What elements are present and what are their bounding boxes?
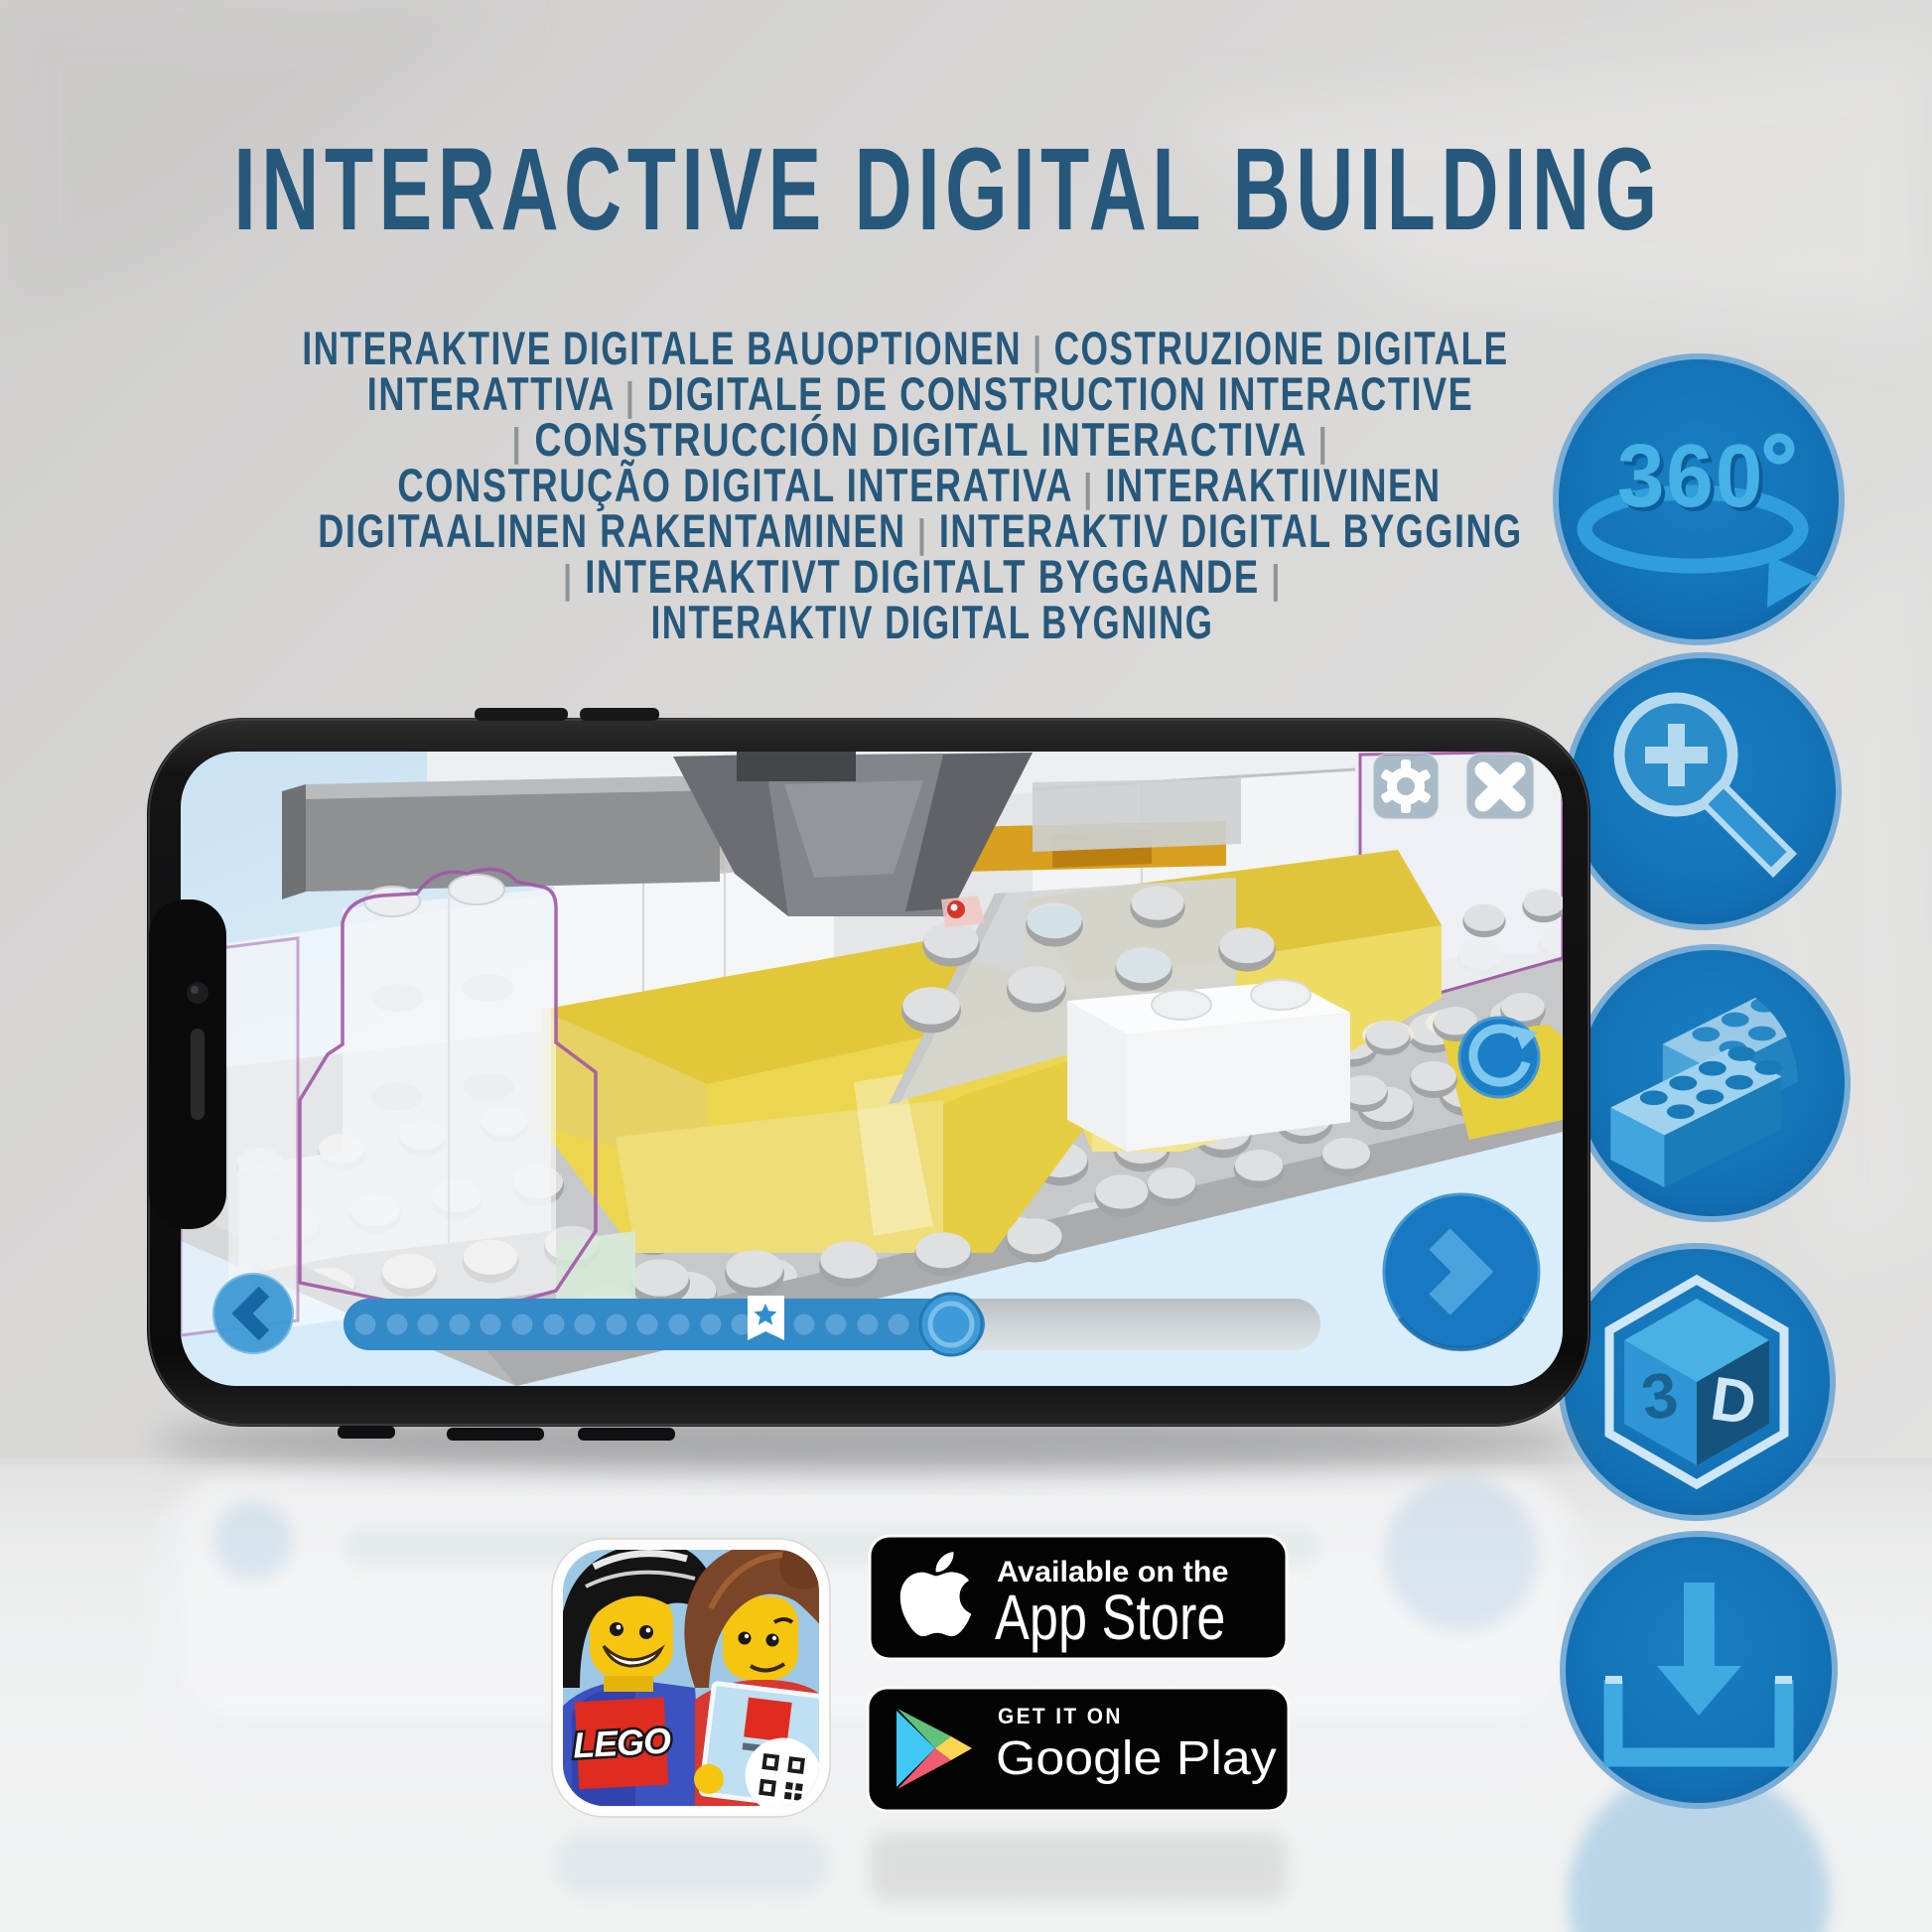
svg-text:GET IT ON: GET IT ON <box>998 1705 1123 1729</box>
svg-text:D: D <box>1707 1364 1760 1439</box>
svg-text:360: 360 <box>1617 426 1764 525</box>
svg-text:INTERATTIVA | DIGITALE DE CONS: INTERATTIVA | DIGITALE DE CONSTRUCTION I… <box>367 367 1473 420</box>
svg-text:INTERAKTIV DIGITAL BYGNING: INTERAKTIV DIGITAL BYGNING <box>651 597 1214 648</box>
svg-text:| INTERAKTIVT DIGITALT BYGGAND: | INTERAKTIVT DIGITALT BYGGANDE | <box>563 551 1281 604</box>
svg-text:DIGITAALINEN RAKENTAMINEN | IN: DIGITAALINEN RAKENTAMINEN | INTERAKTIV D… <box>318 504 1523 557</box>
svg-text:INTERACTIVE DIGITAL BUILDING: INTERACTIVE DIGITAL BUILDING <box>233 125 1662 255</box>
svg-text:Google Play: Google Play <box>996 1731 1278 1785</box>
svg-text:LEGO: LEGO <box>572 1720 672 1765</box>
svg-text:CONSTRUÇÃO DIGITAL INTERATIVA: CONSTRUÇÃO DIGITAL INTERATIVA | INTERAKT… <box>397 460 1441 512</box>
svg-text:INTERAKTIVE DIGITALE BAUOPTION: INTERAKTIVE DIGITALE BAUOPTIONEN | COSTR… <box>302 322 1508 374</box>
svg-text:App Store: App Store <box>995 1583 1225 1653</box>
